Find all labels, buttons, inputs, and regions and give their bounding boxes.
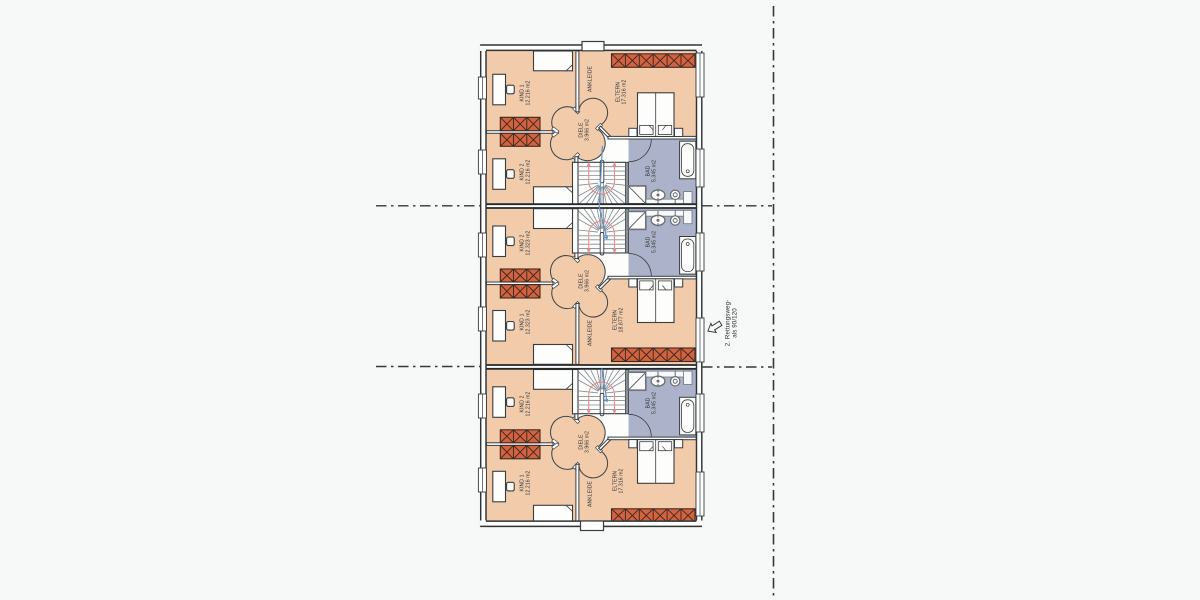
svg-text:5.345 m2: 5.345 m2 <box>652 231 658 253</box>
svg-text:12.216 m2: 12.216 m2 <box>526 391 532 416</box>
svg-text:ANKLEIDE: ANKLEIDE <box>588 66 594 92</box>
svg-text:12.216 m2: 12.216 m2 <box>526 159 532 184</box>
svg-text:17.316 m2: 17.316 m2 <box>619 468 625 493</box>
svg-text:12.323 m2: 12.323 m2 <box>526 309 532 334</box>
svg-text:12.216 m2: 12.216 m2 <box>526 470 532 495</box>
svg-text:ANKLEIDE: ANKLEIDE <box>588 481 594 507</box>
svg-text:5.345 m2: 5.345 m2 <box>652 392 658 414</box>
svg-text:ANKLEIDE: ANKLEIDE <box>588 320 594 346</box>
svg-text:5.345 m2: 5.345 m2 <box>652 160 658 182</box>
svg-text:3.966 m2: 3.966 m2 <box>585 270 591 292</box>
svg-text:17.316 m2: 17.316 m2 <box>622 79 628 104</box>
svg-text:12.216 m2: 12.216 m2 <box>526 80 532 105</box>
svg-text:als 90/120: als 90/120 <box>732 308 739 338</box>
svg-text:18.877 m2: 18.877 m2 <box>619 307 625 332</box>
svg-text:3.966 m2: 3.966 m2 <box>585 431 591 453</box>
svg-text:12.323 m2: 12.323 m2 <box>526 230 532 255</box>
svg-text:3.966 m2: 3.966 m2 <box>585 119 591 141</box>
svg-text:2. Rettungsweg-: 2. Rettungsweg- <box>725 300 732 347</box>
